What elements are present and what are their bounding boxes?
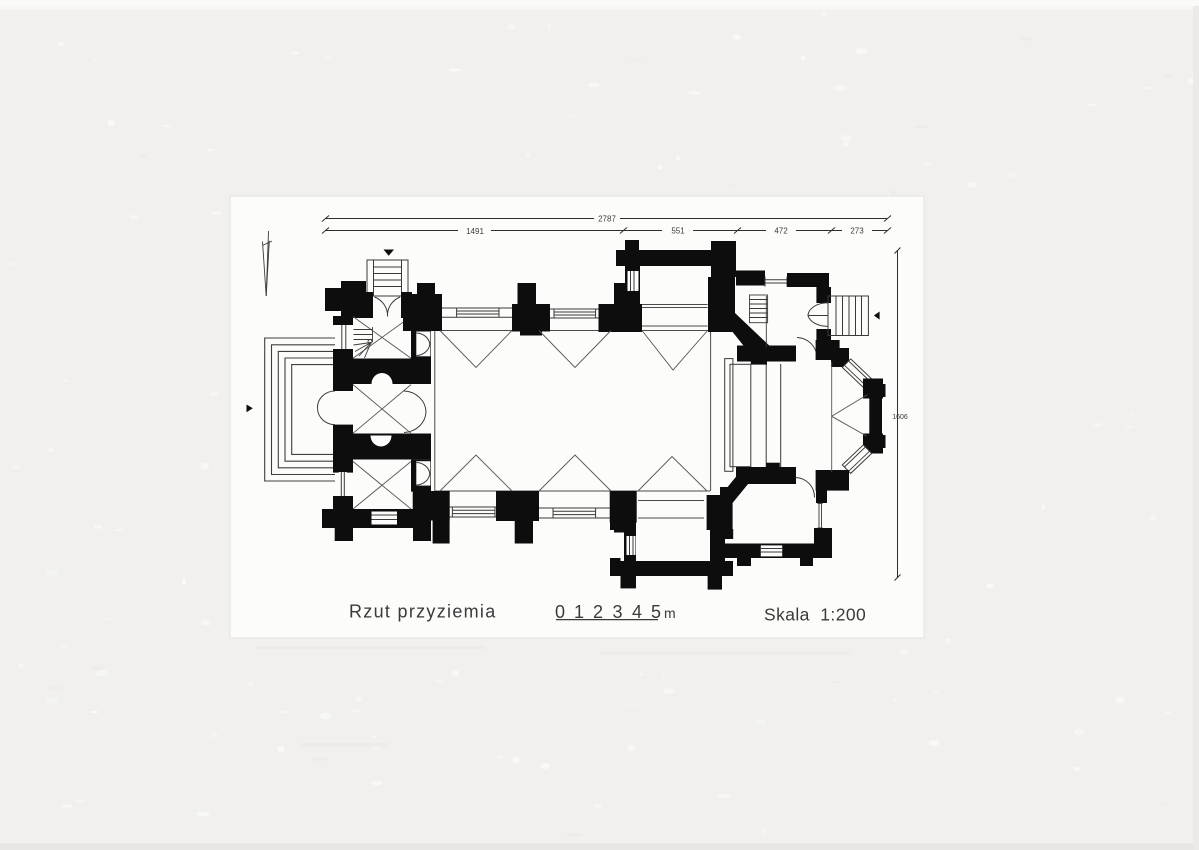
svg-text:m: m (664, 605, 676, 621)
svg-text:273: 273 (850, 227, 864, 236)
svg-text:1491: 1491 (466, 227, 484, 236)
svg-text:Skala 1:200: Skala 1:200 (764, 605, 866, 625)
svg-text:551: 551 (671, 227, 685, 236)
svg-text:Rzut przyziemia: Rzut przyziemia (349, 602, 497, 622)
svg-text:1606: 1606 (892, 414, 908, 421)
svg-text:472: 472 (774, 227, 788, 236)
svg-text:2787: 2787 (598, 215, 616, 224)
